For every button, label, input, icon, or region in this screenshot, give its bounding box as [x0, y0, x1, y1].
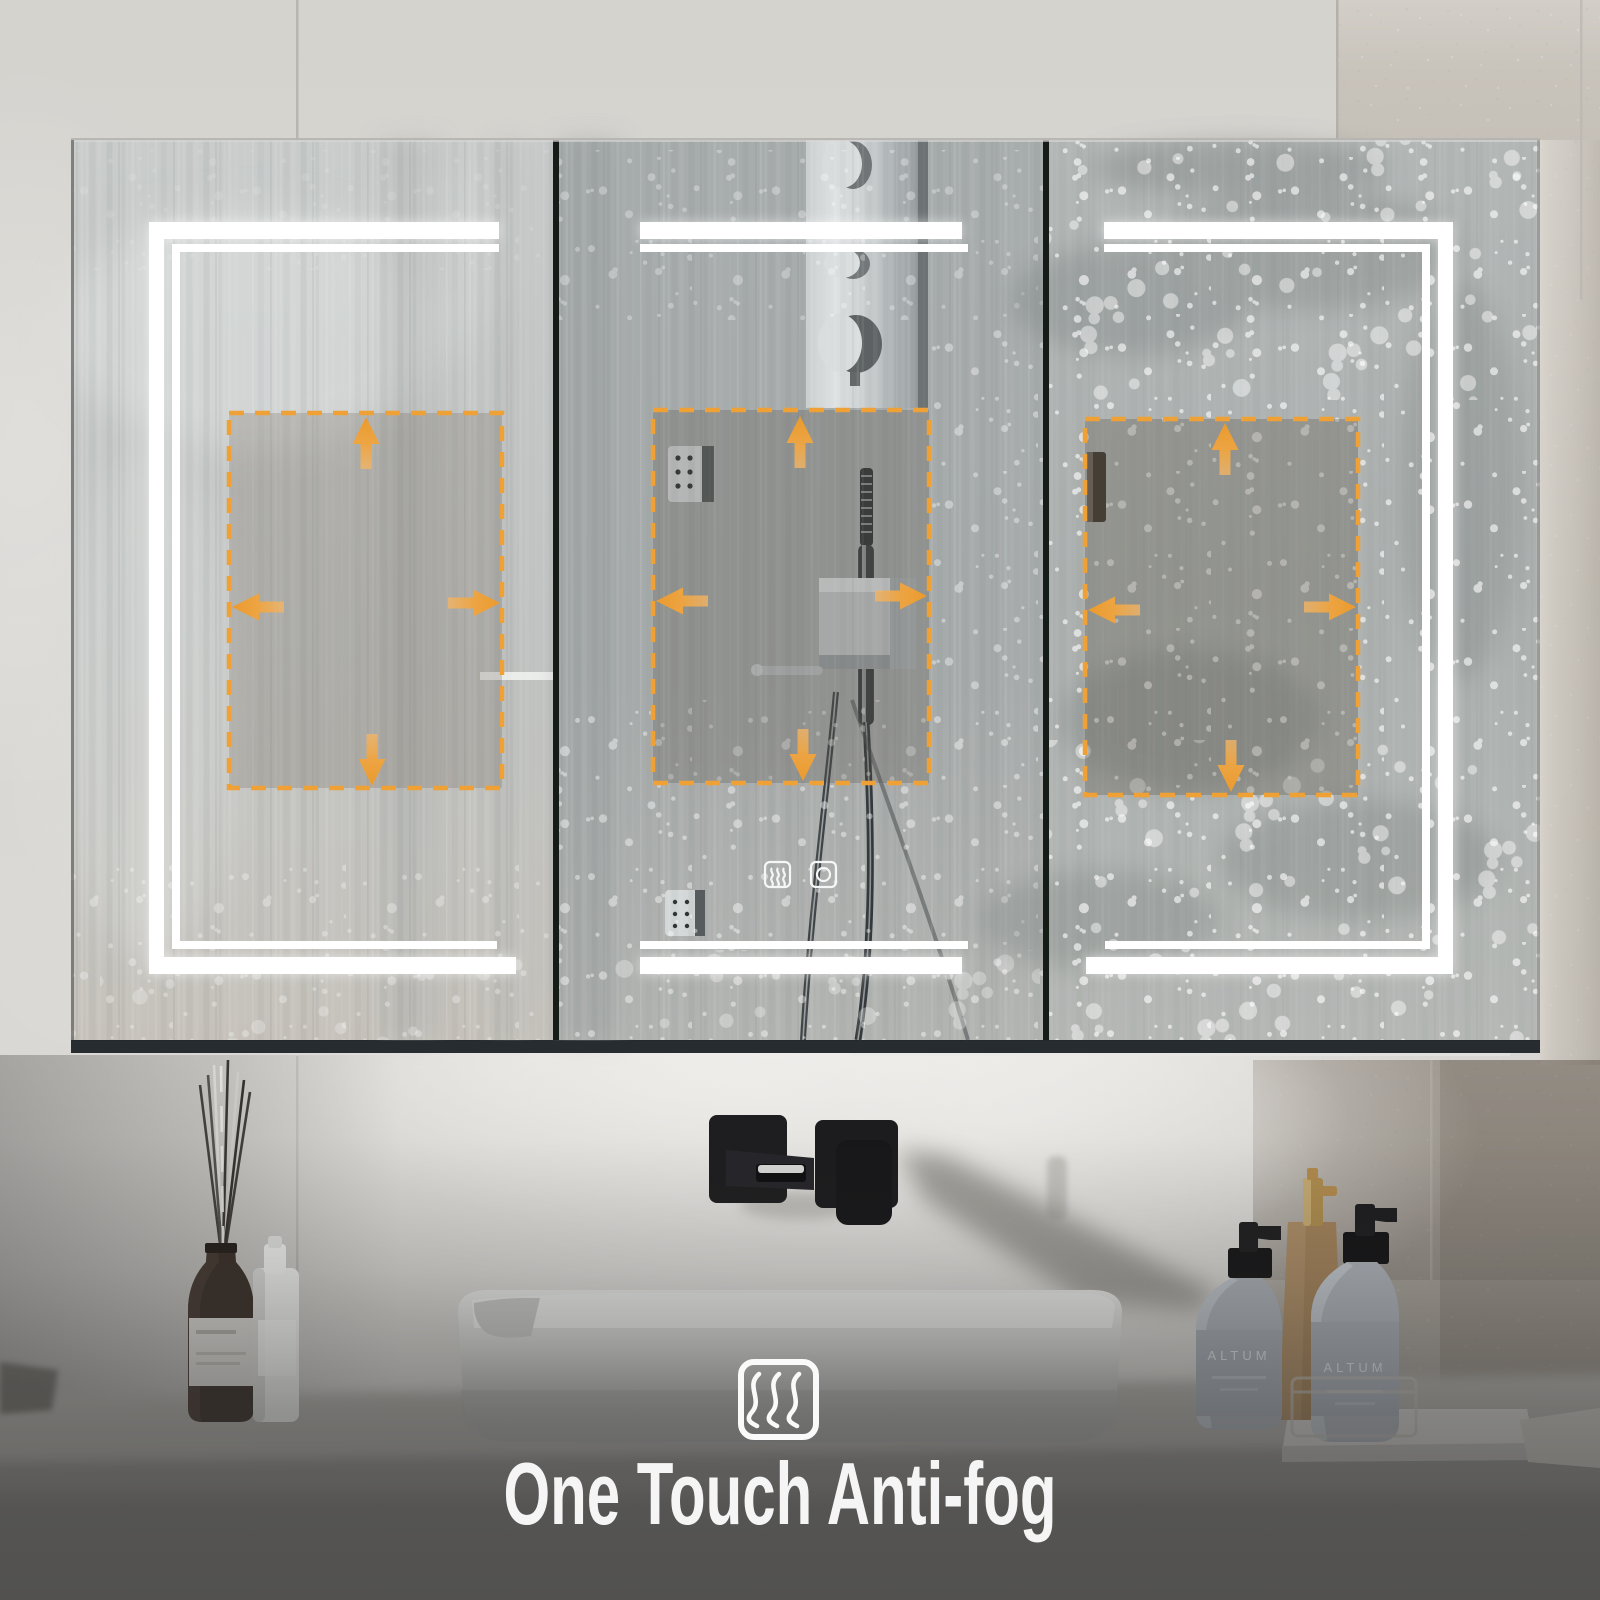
svg-text:One Touch Anti-fog: One Touch Anti-fog	[504, 1444, 1057, 1543]
